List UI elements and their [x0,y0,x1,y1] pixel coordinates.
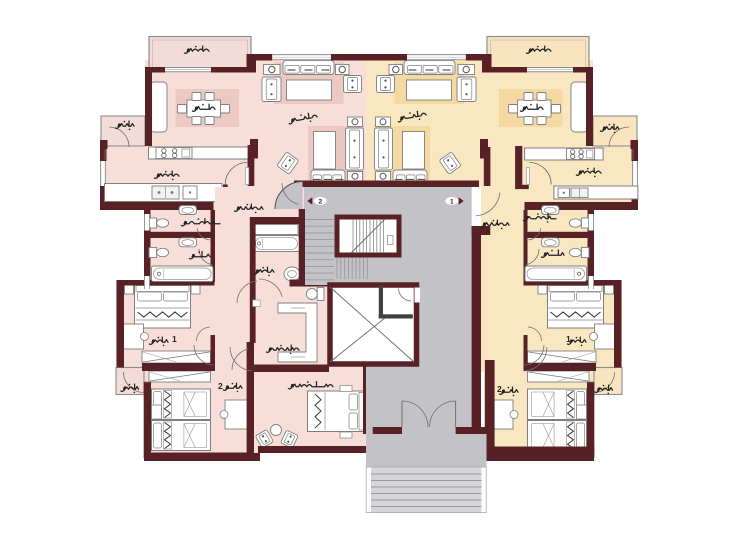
svg-text:1: 1 [566,334,571,344]
svg-text:2: 2 [318,198,322,205]
svg-text:2: 2 [497,384,502,394]
svg-text:2: 2 [218,381,223,391]
svg-text:1: 1 [172,334,177,344]
svg-text:1: 1 [450,198,454,205]
